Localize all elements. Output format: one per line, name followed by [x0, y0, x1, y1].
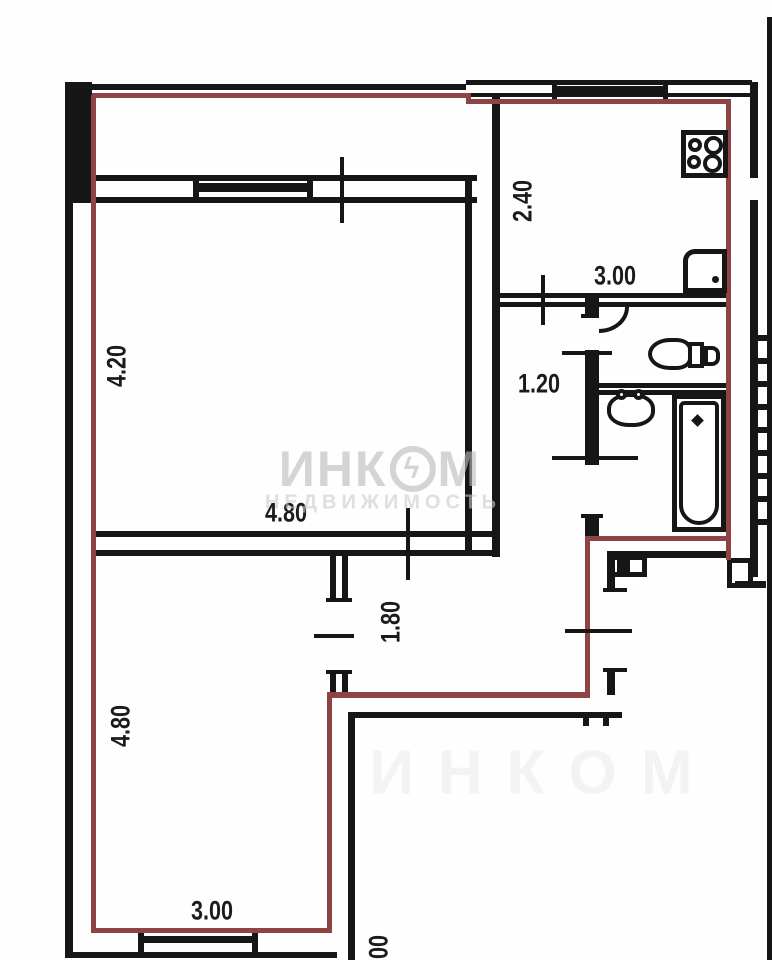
door-jamb [603, 668, 627, 672]
wall-room1-bottom-b [92, 550, 500, 556]
wall-room2-bottom [73, 952, 337, 958]
corner-sink [599, 307, 629, 333]
toilet-tank [688, 342, 704, 368]
wall-wc-bath-divider-a [593, 383, 727, 388]
apartment-boundary-left [91, 95, 96, 933]
dimension-label-room1-height: 4.20 [102, 345, 133, 387]
apartment-boundary-bath-bottom [590, 536, 731, 541]
wall-left-outer [65, 82, 73, 958]
tick [603, 716, 609, 726]
balcony-hatch-rung [757, 496, 772, 502]
dimension-label-room2-width: 3.00 [191, 896, 233, 927]
balcony-hatch-rung [757, 335, 772, 341]
window-bar-room1 [193, 183, 313, 192]
wall-room1-top-inner [92, 197, 477, 203]
apartment-boundary-kitchen-top [470, 99, 731, 104]
watermark-ghost: ИНКОМ [369, 738, 716, 809]
watermark-text-left: ИНК [279, 440, 388, 498]
wall-kitchen-top-outer [466, 80, 752, 85]
window-bar-kitchen [552, 86, 668, 94]
window-bar-room2 [138, 936, 258, 943]
edge-line-right [767, 17, 772, 960]
apartment-boundary-room2-right [327, 692, 332, 933]
door-jamb [326, 670, 352, 674]
stove-burner-icon [704, 136, 723, 155]
toilet-tank [704, 346, 720, 366]
wall-kitchen-bottom-a [500, 293, 727, 298]
watermark-logo: ИНК ϟ М [279, 440, 481, 498]
wall-room1-bottom-a [92, 531, 500, 537]
wall-room1-top-outer [92, 175, 477, 181]
wall-lower-horizontal [348, 712, 622, 718]
wall-left-balcony-pier [73, 82, 92, 203]
dimension-label-edge-partial: 00 [364, 935, 395, 959]
dimension-tick [340, 157, 344, 223]
door-jamb [603, 588, 627, 592]
toilet-bowl [648, 338, 692, 370]
lightning-icon: ϟ [389, 446, 435, 492]
watermark-subtitle: НЕДВИЖИМОСТЬ [265, 492, 501, 515]
balcony-hatch-rung [757, 519, 772, 525]
wall-lower-vertical [348, 712, 355, 960]
wall-right-outer [750, 82, 758, 178]
sink-drain-icon [712, 276, 719, 283]
stove [681, 130, 728, 178]
balcony-hatch-rung [757, 381, 772, 387]
dimension-tick [565, 629, 632, 633]
wall-wc-left [585, 518, 599, 538]
stove-burner-icon [687, 155, 701, 169]
wall-entry-vertical [607, 668, 615, 695]
dimension-tick [562, 351, 612, 355]
apartment-boundary-top [92, 93, 466, 98]
washbasin [607, 393, 655, 427]
balcony-hatch-rung [757, 358, 772, 364]
apartment-boundary-room2-bottom [91, 928, 332, 933]
door-jamb [581, 514, 603, 518]
washbasin-tap-icon [616, 389, 627, 400]
balcony-hatch-rung [757, 427, 772, 433]
dimension-label-kitchen-depth: 2.40 [508, 180, 539, 222]
balcony-hatch-rung [757, 450, 772, 456]
dimension-label-room2-height: 4.80 [106, 705, 137, 747]
apartment-boundary-corridor-bottom [330, 692, 590, 698]
floor-plan: 4.20 4.80 2.40 3.00 1.20 1.80 4.80 3.00 … [0, 0, 772, 960]
dimension-tick [541, 275, 545, 325]
balcony-rail-top [92, 84, 466, 90]
wall-wc-left [585, 350, 599, 465]
tick [583, 716, 589, 726]
stove-burner-icon [703, 154, 722, 173]
wall-room2-right [342, 556, 348, 602]
wall-room1-right-b [492, 96, 500, 557]
dimension-label-hall-width: 1.20 [518, 369, 560, 400]
balcony-hatch-rung [757, 473, 772, 479]
dimension-label-kitchen-width: 3.00 [594, 261, 636, 292]
washbasin-tap-icon [633, 389, 644, 400]
dimension-tick [552, 456, 638, 460]
entry-door-panel [617, 559, 630, 572]
kitchen-sink [683, 249, 727, 293]
wall-stair-ledge [735, 581, 766, 588]
balcony-hatch-rung [757, 404, 772, 410]
watermark-text-right: М [437, 440, 481, 498]
dimension-label-corridor-depth: 1.80 [376, 601, 407, 643]
dimension-tick [314, 634, 354, 638]
dimension-tick [406, 508, 410, 580]
stove-burner-icon [688, 138, 702, 152]
door-jamb [326, 598, 352, 602]
wall-room2-right [330, 556, 336, 602]
apartment-boundary-entry [585, 536, 590, 698]
